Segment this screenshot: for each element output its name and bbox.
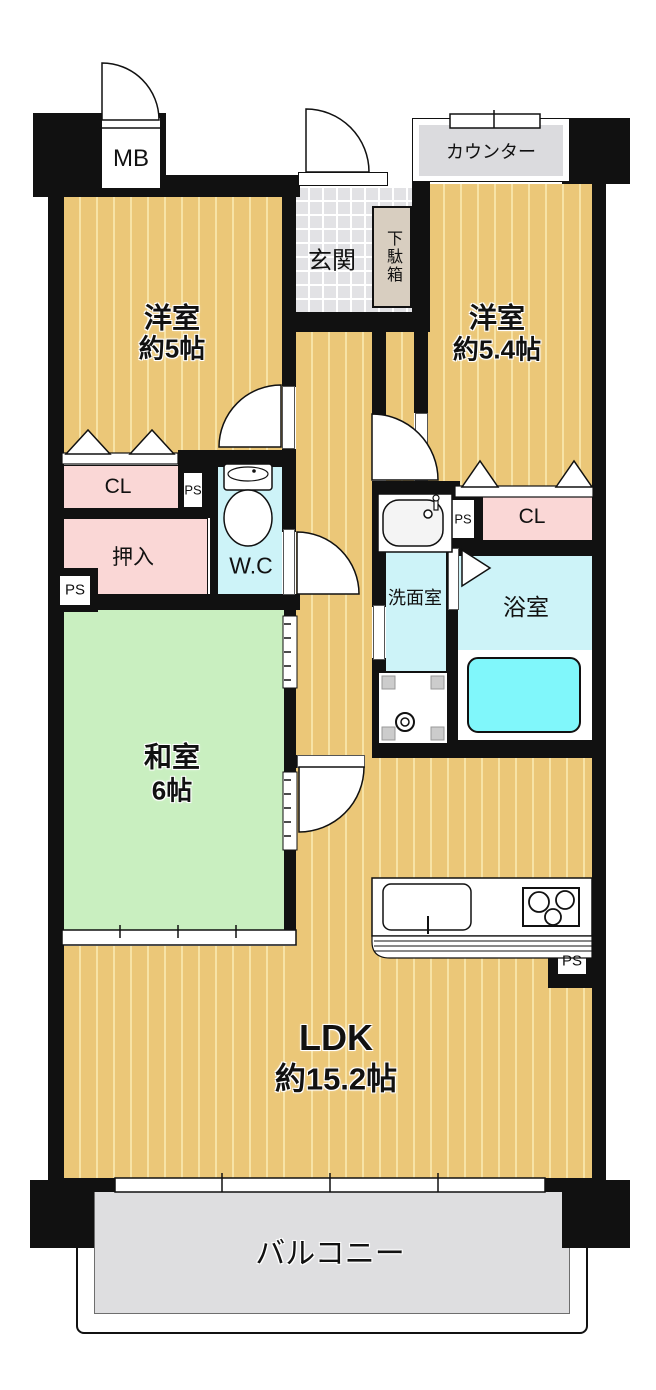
western-room-1-name: 洋室	[144, 303, 200, 332]
entrance-threshold	[298, 172, 388, 186]
toilet-label: W.C	[229, 553, 272, 580]
bathroom-label: 浴室	[503, 588, 549, 622]
japanese-room-sliding-door-1	[283, 616, 297, 688]
washroom-door-leaf	[373, 605, 385, 660]
wall-entrance-step	[282, 312, 430, 332]
wall-washroom-left-b	[372, 658, 386, 740]
balcony-label: バルコニー	[255, 1238, 404, 1270]
wall-bathroom-bottom	[372, 740, 606, 758]
wall-closet-oshiire	[56, 508, 210, 518]
shoe-box-label: 下駄箱	[380, 230, 404, 284]
ldk-name: LDK	[299, 1019, 373, 1057]
ldk-door-leaf	[297, 755, 365, 768]
hall-nook-floor	[386, 332, 414, 481]
pipe-space-kitchen-label: PS	[562, 953, 582, 970]
western-room-2-name: 洋室	[469, 303, 525, 332]
wall-japanese-right-a	[284, 610, 296, 618]
western-room-1-size: 約5帖	[139, 335, 205, 362]
wall-bathroom-top	[446, 540, 592, 556]
entrance-door-arc	[306, 109, 369, 172]
meter-box-label: MB	[113, 145, 149, 173]
pipe-space-right-label: PS	[454, 512, 471, 527]
wall-hall-left-a	[282, 332, 296, 387]
ldk-floor-left	[64, 946, 297, 1178]
wall-japanese-right-c	[284, 850, 296, 932]
japanese-room-name: 和室	[144, 742, 200, 771]
wall-ldk-bottom-left	[58, 1178, 118, 1192]
bathroom-door-leaf	[448, 548, 459, 610]
wall-hall-right-a	[372, 332, 386, 415]
pipe-space-lower-left-label: PS	[65, 582, 85, 599]
wall-right-run	[592, 184, 606, 1192]
western-room-2-size: 約5.4帖	[453, 336, 541, 363]
wall-entrance-left	[282, 180, 296, 332]
western-room-1-door-leaf	[282, 386, 295, 449]
closet-left-label: CL	[105, 475, 132, 499]
ldk-size: 約15.2帖	[275, 1064, 397, 1097]
wall-top-left-run	[166, 175, 300, 197]
closet-right-label: CL	[519, 505, 546, 529]
bathroom-tub-area	[458, 650, 592, 740]
washroom-label: 洗面室	[388, 584, 442, 610]
wall-ldk-bottom-right	[540, 1178, 594, 1192]
meter-box-door-arc	[102, 63, 159, 120]
toilet-door-leaf	[283, 529, 295, 595]
entrance-label: 玄関	[308, 241, 356, 276]
wall-toilet-top	[178, 450, 296, 467]
wall-left-run	[48, 197, 64, 1190]
japanese-room-sliding-door-2	[283, 772, 297, 850]
floor-plan: MB カウンター 玄関 下駄箱 洋室 約5帖 洋室 約5.4帖 CL PS W.…	[0, 0, 656, 1390]
western-room-2-door-leaf	[415, 413, 428, 481]
japanese-room-size: 6帖	[152, 777, 192, 804]
wall-washroom-left-a	[372, 496, 386, 607]
wall-corner-top-right	[562, 118, 630, 184]
oshiire-label: 押入	[112, 541, 154, 571]
wall-western2-left	[414, 332, 428, 413]
wall-toilet-left	[210, 467, 218, 594]
washroom-floor	[386, 496, 446, 740]
counter-label: カウンター	[446, 138, 536, 164]
hall-floor	[296, 332, 372, 768]
pipe-space-mid-left-label: PS	[184, 483, 201, 498]
